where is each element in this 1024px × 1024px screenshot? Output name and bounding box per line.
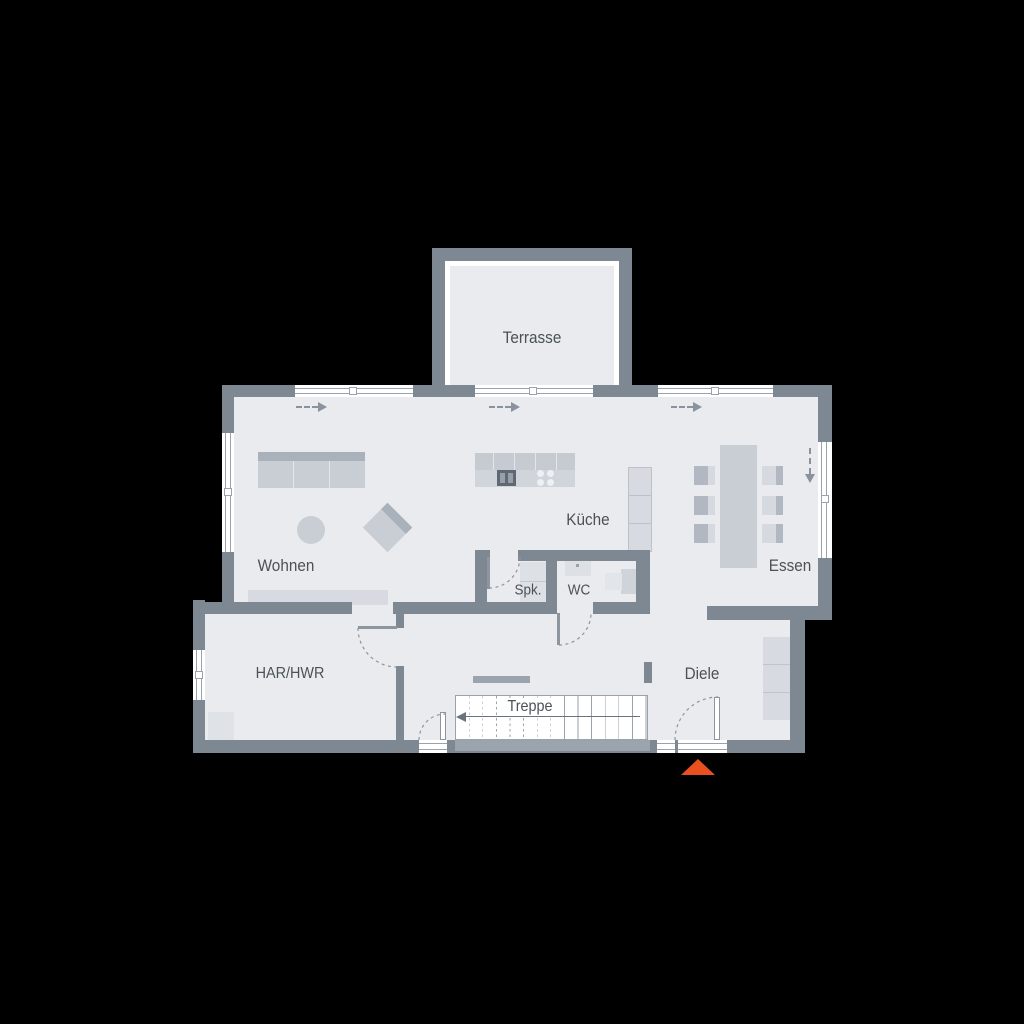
arrow-head: [318, 402, 327, 412]
stair-direction-arrow-icon: [456, 712, 466, 722]
window-handle-marker: [224, 488, 232, 496]
wall-har-hall: [396, 666, 404, 740]
stair-direction-line: [464, 716, 640, 717]
wall-pillar: [644, 662, 652, 683]
cabinet-seam: [628, 495, 652, 496]
har-door-arc: [358, 628, 397, 667]
wc-door-arc: [559, 613, 591, 645]
side-door-sill: [419, 740, 447, 753]
stair-handrail: [473, 676, 530, 683]
dining-chair: [762, 524, 783, 543]
wall-har-hall-stub: [396, 614, 404, 628]
window-handle-marker: [711, 387, 719, 395]
window-north-3: [658, 385, 773, 397]
window-east-essen: [818, 442, 832, 558]
slide-arrow-icon: [296, 402, 327, 412]
window-west-har: [193, 650, 205, 700]
under-stair-band: [455, 740, 650, 751]
entry-door-sill: [678, 740, 727, 753]
sofa-backrest: [258, 452, 365, 461]
utility-equipment: [208, 712, 234, 740]
cooktop-burner: [547, 470, 554, 477]
arrow-dash: [296, 406, 318, 408]
entry-door-arc: [675, 697, 718, 740]
cooktop-burner: [537, 470, 544, 477]
arrow-head: [805, 474, 815, 483]
counter-seam: [514, 453, 515, 470]
sink-basin: [508, 473, 513, 483]
window-handle-marker: [821, 495, 829, 503]
wc-sink-drain: [576, 564, 579, 567]
room-label-wc: WC: [568, 582, 591, 599]
sink-basin: [500, 473, 505, 483]
window-terrace-slider: [475, 385, 593, 397]
wall-wc-east: [636, 550, 650, 614]
room-label-diele: Diele: [685, 664, 720, 684]
kitchen-counter-upper-row: [475, 453, 575, 470]
floor-plan-canvas: Terrasse Wohnen Küche Essen Spk. WC HAR/…: [0, 0, 1024, 1024]
side-table: [297, 516, 325, 544]
room-label-treppe: Treppe: [505, 698, 555, 716]
window-handle-marker: [195, 671, 203, 679]
room-label-har-hwr: HAR/HWR: [256, 665, 325, 683]
dining-chair: [762, 466, 783, 485]
arrow-dash: [489, 406, 511, 408]
sofa-seam: [293, 461, 294, 488]
wardrobe-seam: [763, 692, 790, 693]
wall-essen-diele: [707, 606, 832, 620]
room-label-kueche: Küche: [566, 510, 609, 530]
room-label-wohnen: Wohnen: [258, 556, 315, 576]
counter-seam: [535, 453, 536, 470]
wall-spk-wc-divider: [546, 550, 557, 614]
entry-sidelight: [657, 740, 675, 753]
room-label-terrasse: Terrasse: [503, 328, 562, 348]
wall-right-lower: [790, 608, 805, 753]
slide-arrow-icon: [671, 402, 702, 412]
wc-toilet-tank: [621, 569, 636, 594]
arrow-head: [693, 402, 702, 412]
cooktop-burner: [537, 479, 544, 486]
terrace-floor: [450, 266, 614, 385]
wall-hall-north: [393, 602, 555, 614]
wall-spk-west: [475, 550, 487, 614]
wc-toilet-bowl: [605, 573, 622, 590]
hall-wardrobe: [763, 637, 790, 720]
window-handle-marker: [349, 387, 357, 395]
dining-chair: [694, 524, 715, 543]
entrance-marker-icon: [681, 759, 715, 775]
counter-seam: [493, 453, 494, 470]
window-north-1: [295, 385, 413, 397]
terrace-wall-right: [619, 248, 632, 392]
dining-chair: [694, 466, 715, 485]
counter-seam: [556, 453, 557, 470]
side-door-arc: [419, 714, 445, 740]
wardrobe-seam: [763, 664, 790, 665]
wall-spk-wc-north: [518, 550, 650, 561]
kitchen-tall-cabinet: [628, 467, 652, 552]
terrace-wall-left: [432, 248, 445, 392]
room-label-spk: Spk.: [514, 582, 541, 599]
sofa-seam: [329, 461, 330, 488]
cooktop-burner: [547, 479, 554, 486]
wc-sink: [565, 561, 591, 576]
window-handle-marker: [529, 387, 537, 395]
room-label-essen: Essen: [769, 556, 812, 576]
arrow-head: [511, 402, 520, 412]
dining-table: [720, 445, 757, 568]
slide-arrow-icon: [489, 402, 520, 412]
arrow-dash: [671, 406, 693, 408]
cabinet-seam: [628, 523, 652, 524]
dining-chair: [694, 496, 715, 515]
dining-chair: [762, 496, 783, 515]
terrace-wall-top: [432, 248, 632, 261]
kitchen-sink: [497, 470, 516, 486]
arrow-dash: [809, 448, 811, 474]
slide-arrow-down-icon: [805, 448, 815, 483]
window-west-wohnen: [222, 433, 234, 552]
wall-wohnen-har: [193, 602, 352, 614]
